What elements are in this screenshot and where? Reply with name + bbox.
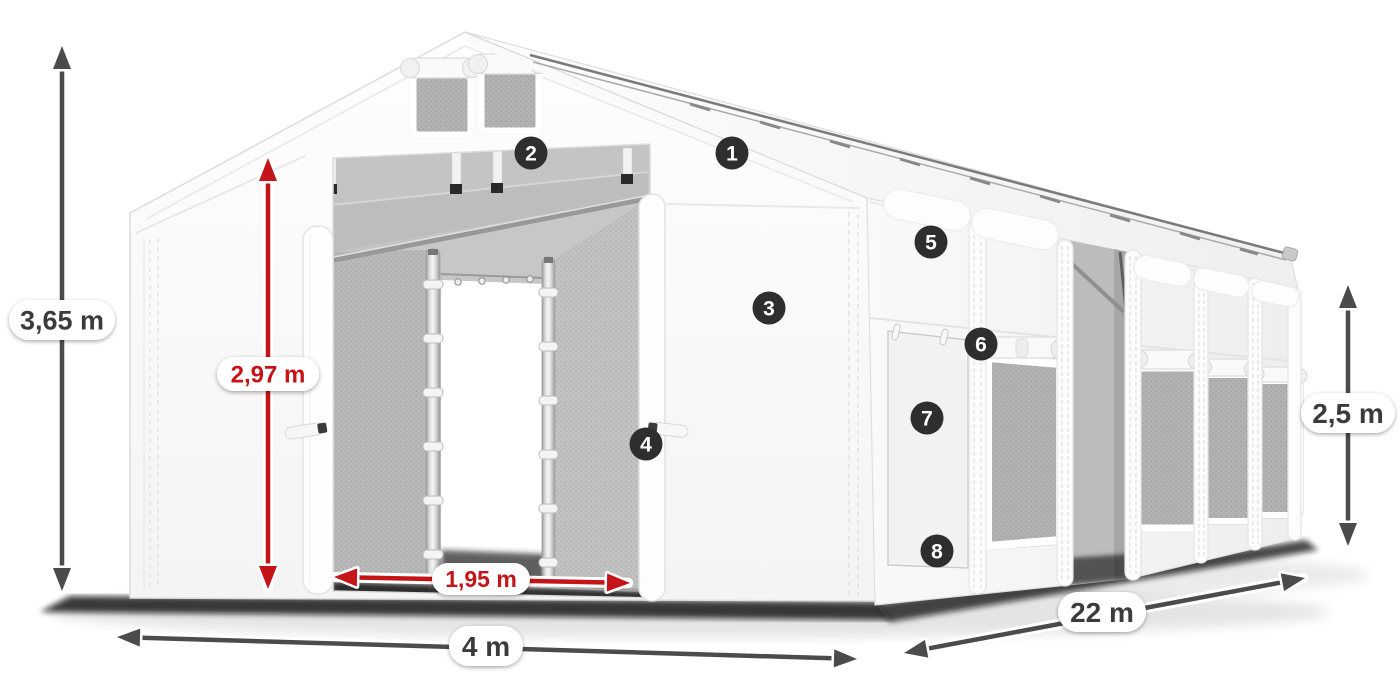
dimension-label-ridge-height: 2,97 m — [231, 361, 306, 388]
arrowhead-icon — [53, 46, 71, 69]
arrowhead-icon — [904, 640, 928, 658]
partition-pole-right — [539, 257, 558, 593]
callout-marker-8: 8 — [921, 535, 954, 568]
marker-number: 1 — [726, 143, 738, 166]
arrowhead-icon — [1281, 573, 1305, 591]
marker-number: 8 — [931, 541, 943, 564]
module-gap-opening — [1066, 240, 1128, 585]
marker-number: 6 — [975, 334, 987, 357]
callout-marker-3: 3 — [753, 292, 786, 325]
callout-marker-6: 6 — [965, 328, 998, 361]
left-door-edge-tube — [303, 226, 333, 594]
marker-number: 2 — [525, 143, 537, 166]
arrowhead-icon — [1339, 285, 1357, 308]
callout-marker-2: 2 — [515, 137, 548, 170]
dimension-label-length: 22 m — [1070, 597, 1134, 628]
tent-interior — [325, 140, 656, 602]
right-door-edge-tube — [639, 194, 665, 601]
arrowhead-icon — [117, 629, 140, 647]
gable-vent-left — [401, 58, 482, 138]
partition-pole-left — [423, 249, 443, 594]
marker-number: 5 — [925, 232, 937, 255]
callout-marker-7: 7 — [911, 402, 944, 435]
marker-number: 3 — [763, 298, 775, 321]
callout-marker-5: 5 — [915, 226, 948, 259]
arrowhead-icon — [834, 649, 857, 667]
tent-diagram: 3,65 m2,97 m1,95 m4 m22 m2,5 m 12345678 — [0, 0, 1400, 700]
side-door-panel — [888, 324, 968, 568]
dimension-label-front-width: 4 m — [462, 631, 510, 662]
dimension-label-side-height: 2,5 m — [1312, 398, 1384, 429]
arrowhead-icon — [53, 568, 71, 591]
dimension-side-height: 2,5 m — [1301, 285, 1395, 546]
marker-number: 4 — [640, 434, 652, 457]
callout-marker-1: 1 — [716, 137, 749, 170]
through-opening — [441, 280, 545, 588]
dimension-label-total-height: 3,65 m — [20, 305, 104, 335]
tent-illustration: 3,65 m2,97 m1,95 m4 m22 m2,5 m 12345678 — [0, 0, 1400, 700]
dimension-label-entrance-width: 1,95 m — [445, 566, 517, 592]
arrowhead-icon — [1339, 523, 1357, 546]
marker-number: 7 — [921, 408, 933, 431]
callout-marker-4: 4 — [630, 428, 663, 461]
dimension-total-height: 3,65 m — [9, 46, 115, 591]
